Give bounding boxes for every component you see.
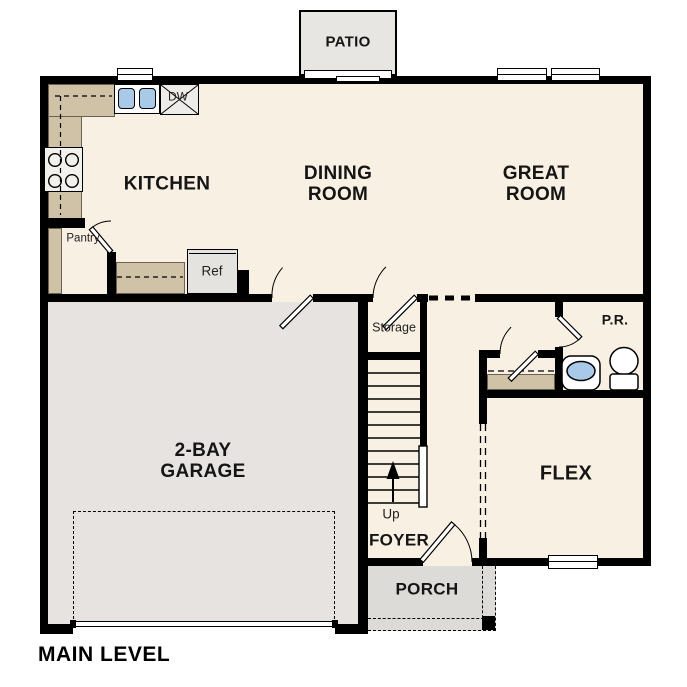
flex-window-mullion [549, 561, 597, 562]
wall-garage-bottom-left [40, 624, 73, 634]
great-room-window-1-mullion [498, 74, 546, 75]
wall-right [643, 76, 651, 566]
dining-room-label-line1: DINING [304, 163, 372, 184]
kitchen-sink-basin-right [139, 88, 156, 109]
porch-label: PORCH [396, 579, 459, 600]
kitchen-counter-top [48, 84, 115, 117]
dining-room-label-line2: ROOM [308, 184, 368, 205]
wall-pantry-stub [107, 252, 116, 294]
plan-title: MAIN LEVEL [38, 643, 170, 667]
wall-closet-top-a [479, 350, 500, 358]
flex-label: FLEX [540, 464, 592, 485]
wall-flex-top [479, 390, 651, 398]
garage-door-swing-dashed [73, 511, 335, 624]
kitchen-counter-lower [116, 262, 185, 294]
wall-garage-right [358, 302, 368, 634]
garage-label-line1: 2-BAY [175, 440, 232, 461]
patio-label: PATIO [325, 32, 370, 53]
foyer-label: FOYER [369, 530, 429, 551]
refrigerator-top-line [189, 253, 236, 254]
flex-window [548, 555, 598, 569]
porch-inner-dash-horizontal [368, 618, 494, 619]
great-room-window-2 [551, 68, 600, 81]
kitchen-sink-basin-left [118, 88, 135, 109]
wall-pr-stub [555, 294, 563, 317]
wall-pr-lower [555, 347, 563, 390]
refrigerator-label: Ref [201, 265, 222, 278]
patio-slider-panel-b [336, 76, 380, 82]
porch-post [482, 616, 495, 630]
powder-room-label: P.R. [602, 310, 629, 331]
dishwasher-label: DW [168, 91, 188, 104]
kitchen-label: KITCHEN [124, 174, 211, 195]
wall-closet-left [479, 350, 487, 424]
up-label: Up [382, 508, 399, 521]
kitchen-window-mullion [118, 74, 152, 75]
kitchen-window [117, 68, 153, 81]
great-room-window-1 [497, 68, 547, 81]
garage-label-line2: GARAGE [160, 461, 245, 482]
wall-ref-stub [238, 270, 249, 294]
range-box [44, 147, 83, 192]
wall-stairs-right [420, 302, 427, 446]
pantry-shelf-strip [48, 228, 62, 294]
great-room-label-line2: ROOM [506, 184, 566, 205]
floor-plan-canvas: PATIO KITCHEN DINING ROOM GREAT ROOM 2-B… [0, 0, 687, 687]
wall-foyer-bottom-a [358, 558, 423, 566]
dining-room-label: DINING ROOM [304, 163, 372, 205]
great-room-label-line1: GREAT [503, 163, 570, 184]
wall-storage-bottom [368, 352, 427, 360]
great-room-window-2-mullion [552, 74, 599, 75]
garage-label: 2-BAY GARAGE [160, 440, 245, 482]
wall-pantry-top [40, 218, 85, 228]
storage-label: Storage [372, 322, 416, 335]
wall-mid-c [417, 294, 428, 302]
great-room-label: GREAT ROOM [503, 163, 570, 205]
coat-closet-shelf [487, 374, 555, 390]
wall-mid-a [40, 294, 272, 302]
wall-mid-b [313, 294, 373, 302]
wall-garage-bottom-right [335, 624, 368, 634]
pantry-label: Pantry [66, 233, 99, 246]
wall-mid-d [475, 294, 651, 302]
